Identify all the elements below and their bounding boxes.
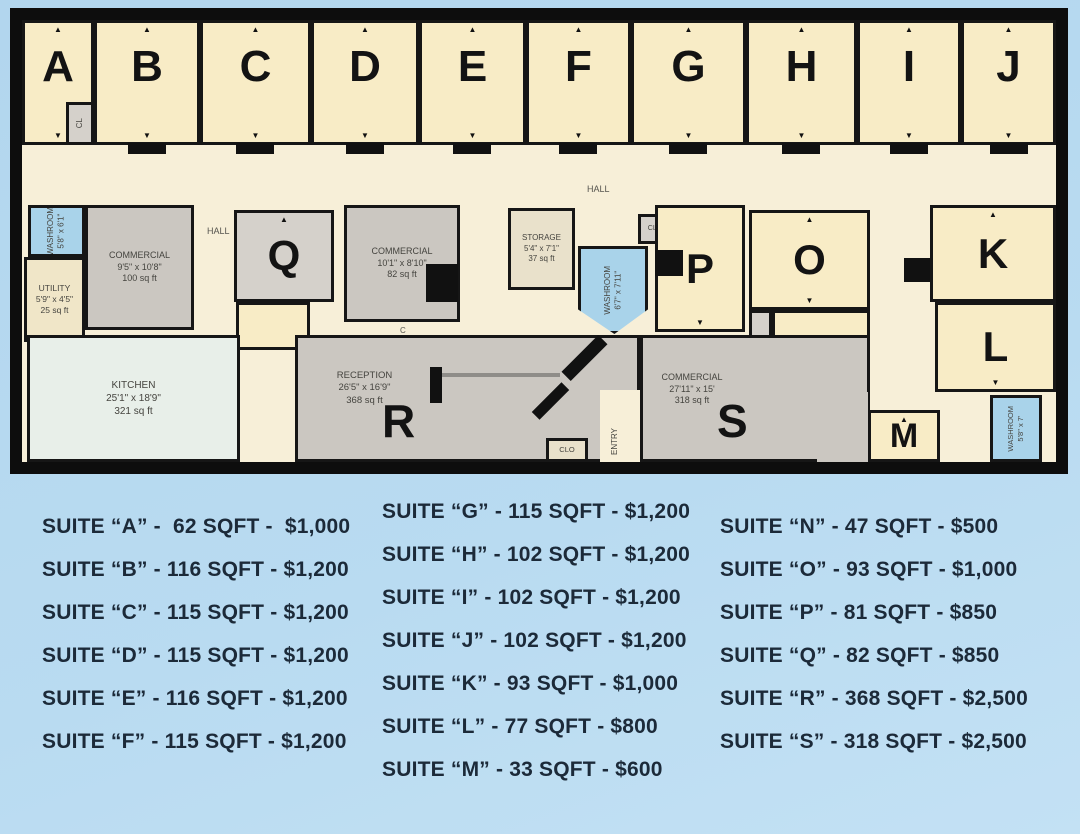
- utility-label: UTILITY 5'9" x 4'5" 25 sq ft: [36, 283, 73, 316]
- room-d-label: D: [349, 45, 381, 89]
- suite-f-listing: SUITE “F” - 115 SQFT - $1,200: [42, 720, 350, 763]
- commercial-82-label: COMMERCIAL 10'1" x 8'10" 82 sq ft: [371, 246, 432, 281]
- suite-k-listing: SUITE “K” - 93 SQFT - $1,000: [382, 662, 690, 705]
- room-e: E: [419, 20, 526, 145]
- room-l: L: [935, 302, 1056, 392]
- suite-g-listing: SUITE “G” - 115 SQFT - $1,200: [382, 490, 690, 533]
- door-threshold: [559, 143, 597, 154]
- listing-column-3: SUITE “N” - 47 SQFT - $500 SUITE “O” - 9…: [720, 505, 1028, 763]
- room-f: F: [526, 20, 631, 145]
- reception-desk: [430, 367, 442, 403]
- room-a-label: A: [42, 45, 74, 89]
- room-j: J: [961, 20, 1056, 145]
- gray-floor-patch: [817, 392, 868, 462]
- room-h: H: [746, 20, 857, 145]
- suite-m-listing: SUITE “M” - 33 SQFT - $600: [382, 748, 690, 791]
- room-g: G: [631, 20, 746, 145]
- clo-lower-label: CLO: [559, 445, 574, 455]
- commercial-100-room: COMMERCIAL 9'5" x 10'8" 100 sq ft: [85, 205, 194, 330]
- door-threshold: [128, 143, 166, 154]
- suite-b-listing: SUITE “B” - 116 SQFT - $1,200: [42, 548, 350, 591]
- storage-room: STORAGE 5'4" x 7'1" 37 sq ft: [508, 208, 575, 290]
- door-threshold: [890, 143, 928, 154]
- room-q: Q: [234, 210, 334, 302]
- washroom-bottom-right-label: WASHROOM 5'8" x 7': [1006, 406, 1026, 452]
- room-d: D: [311, 20, 419, 145]
- room-c: C: [200, 20, 311, 145]
- washroom-middle-label: WASHROOM 6'7" x 7'11": [603, 266, 624, 315]
- closet-clo-lower: CLO: [546, 438, 588, 462]
- door-threshold: [782, 143, 820, 154]
- room-i-label: I: [903, 45, 915, 89]
- washroom-left-label: WASHROOM 5'8" x 6'1": [46, 207, 67, 256]
- room-o: O: [749, 210, 870, 310]
- room-c-label: C: [240, 45, 272, 89]
- suite-n-listing: SUITE “N” - 47 SQFT - $500: [720, 505, 1028, 548]
- door-threshold: [669, 143, 707, 154]
- door-threshold: [236, 143, 274, 154]
- suite-i-listing: SUITE “I” - 102 SQFT - $1,200: [382, 576, 690, 619]
- wall-notch: [904, 258, 930, 282]
- suite-l-listing: SUITE “L” - 77 SQFT - $800: [382, 705, 690, 748]
- utility-room: UTILITY 5'9" x 4'5" 25 sq ft: [24, 257, 85, 342]
- suite-s-listing: SUITE “S” - 318 SQFT - $2,500: [720, 720, 1028, 763]
- room-s-label: S: [717, 394, 748, 448]
- washroom-bottom-right: WASHROOM 5'8" x 7': [990, 395, 1042, 462]
- page: A B C D E F G H I J CL HALL HALL: [0, 0, 1080, 834]
- room-i: I: [857, 20, 961, 145]
- door-c-label: C: [400, 326, 406, 335]
- listing-column-1: SUITE “A” - 62 SQFT - $1,000 SUITE “B” -…: [42, 505, 350, 763]
- room-j-label: J: [996, 45, 1020, 89]
- room-r-label: R: [382, 394, 415, 448]
- suite-r-listing: SUITE “R” - 368 SQFT - $2,500: [720, 677, 1028, 720]
- wall-notch: [655, 250, 683, 276]
- room-g-label: G: [671, 45, 705, 89]
- storage-label: STORAGE 5'4" x 7'1" 37 sq ft: [522, 233, 561, 264]
- floor-plan-canvas: A B C D E F G H I J CL HALL HALL: [22, 20, 1056, 462]
- room-b: B: [94, 20, 200, 145]
- room-h-label: H: [786, 45, 818, 89]
- kitchen-label: KITCHEN 25'1" x 18'9" 321 sq ft: [106, 379, 161, 418]
- room-l-label: L: [983, 326, 1009, 368]
- hall-upper-label: HALL: [587, 184, 610, 194]
- washroom-middle: WASHROOM 6'7" x 7'11": [578, 246, 648, 334]
- door-threshold: [453, 143, 491, 154]
- commercial-100-label: COMMERCIAL 9'5" x 10'8" 100 sq ft: [109, 250, 170, 285]
- hall-left-label: HALL: [207, 226, 230, 236]
- suite-o-listing: SUITE “O” - 93 SQFT - $1,000: [720, 548, 1028, 591]
- room-q-label: Q: [268, 235, 301, 277]
- room-m: M: [868, 410, 940, 462]
- room-o-label: O: [793, 239, 826, 281]
- entry-label: ENTRY: [610, 422, 620, 462]
- suite-q-listing: SUITE “Q” - 82 SQFT - $850: [720, 634, 1028, 677]
- listing-column-2: SUITE “G” - 115 SQFT - $1,200 SUITE “H” …: [382, 490, 690, 791]
- reception-desk-counter: [442, 373, 560, 377]
- room-f-label: F: [565, 45, 592, 89]
- suite-c-listing: SUITE “C” - 115 SQFT - $1,200: [42, 591, 350, 634]
- room-k: K: [930, 205, 1056, 302]
- suite-e-listing: SUITE “E” - 116 SQFT - $1,200: [42, 677, 350, 720]
- room-e-label: E: [458, 45, 487, 89]
- door-threshold: [346, 143, 384, 154]
- room-p-label: P: [686, 248, 714, 290]
- suite-p-listing: SUITE “P” - 81 SQFT - $850: [720, 591, 1028, 634]
- closet-cl: CL: [66, 102, 94, 145]
- suite-a-listing: SUITE “A” - 62 SQFT - $1,000: [42, 505, 350, 548]
- room-b-label: B: [131, 45, 163, 89]
- room-m-label: M: [890, 419, 918, 453]
- closet-cl-label: CL: [75, 118, 85, 128]
- room-k-label: K: [978, 233, 1008, 275]
- suite-d-listing: SUITE “D” - 115 SQFT - $1,200: [42, 634, 350, 677]
- kitchen: KITCHEN 25'1" x 18'9" 321 sq ft: [27, 335, 240, 462]
- suite-j-listing: SUITE “J” - 102 SQFT - $1,200: [382, 619, 690, 662]
- door-threshold: [990, 143, 1028, 154]
- wall-notch: [426, 264, 458, 302]
- floor-plan: A B C D E F G H I J CL HALL HALL: [10, 8, 1068, 474]
- washroom-left: WASHROOM 5'8" x 6'1": [28, 205, 85, 257]
- suite-h-listing: SUITE “H” - 102 SQFT - $1,200: [382, 533, 690, 576]
